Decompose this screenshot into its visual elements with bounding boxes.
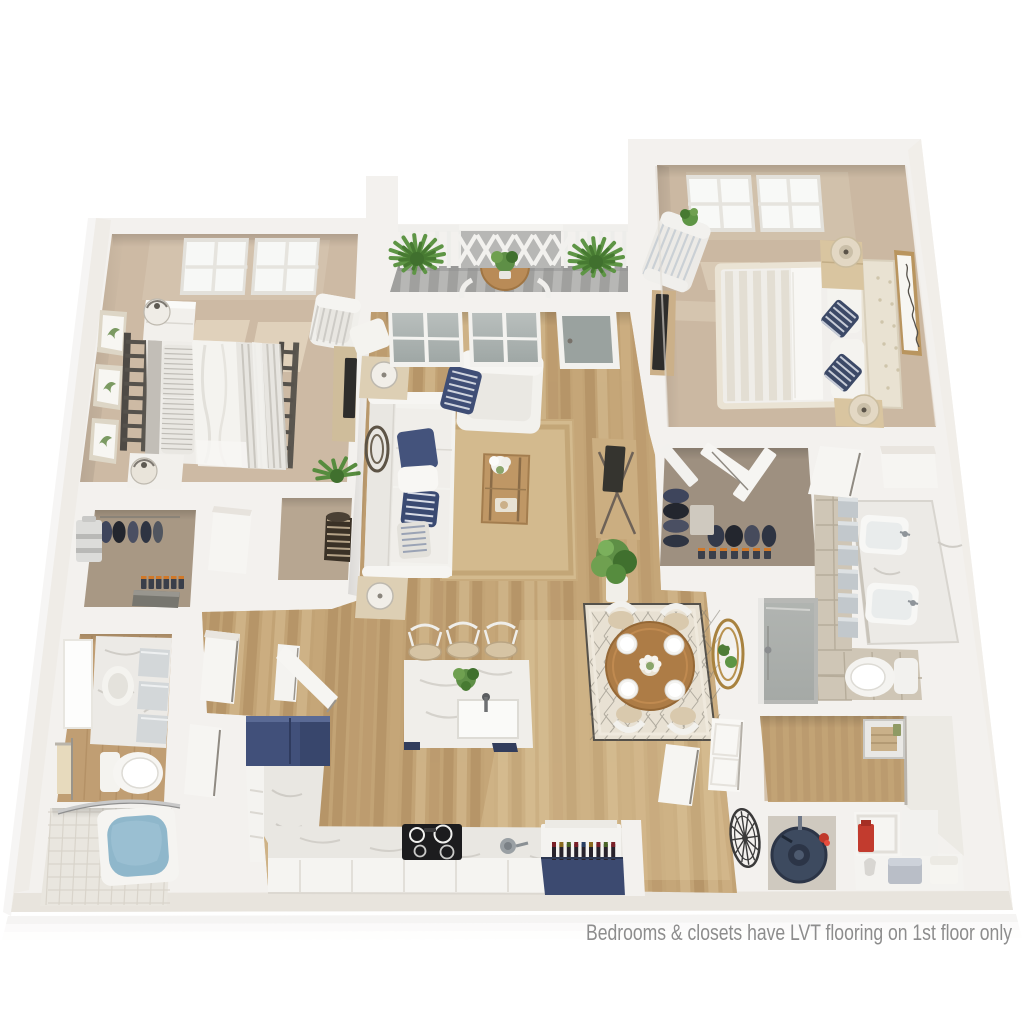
svg-text:Bedrooms & closets have LVT fl: Bedrooms & closets have LVT flooring on …: [586, 920, 1013, 945]
